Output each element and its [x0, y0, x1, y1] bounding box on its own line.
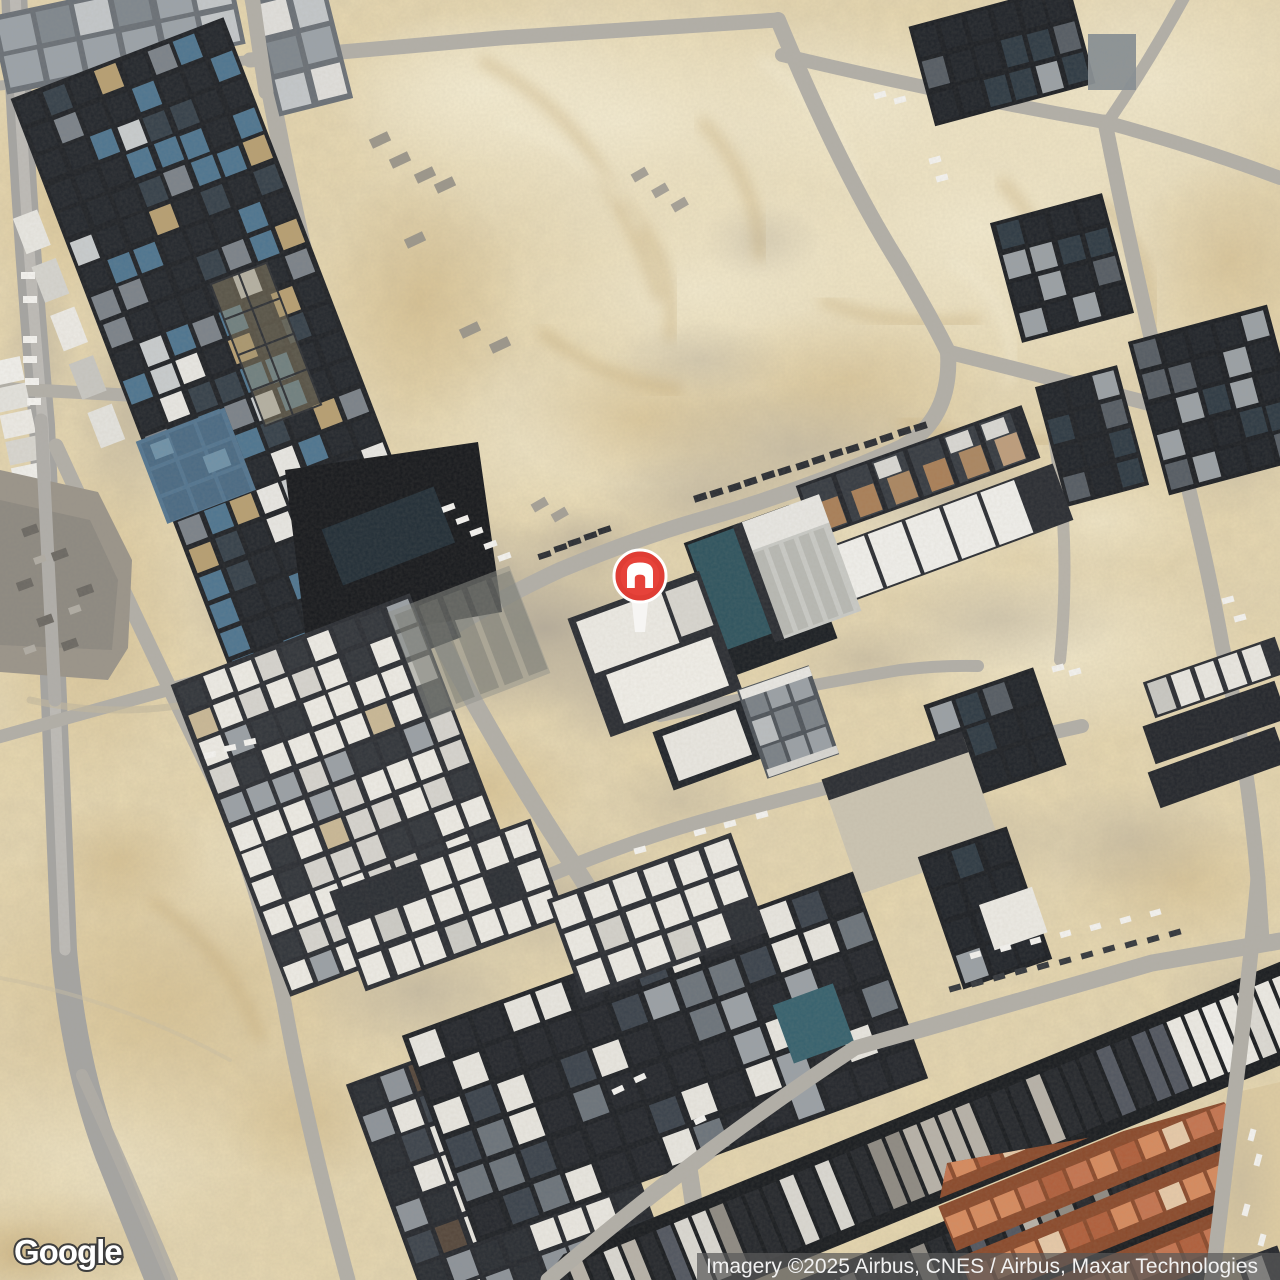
- svg-text:Google: Google: [14, 1233, 122, 1270]
- svg-text:Imagery ©2025 Airbus, CNES / A: Imagery ©2025 Airbus, CNES / Airbus, Max…: [706, 1255, 1258, 1278]
